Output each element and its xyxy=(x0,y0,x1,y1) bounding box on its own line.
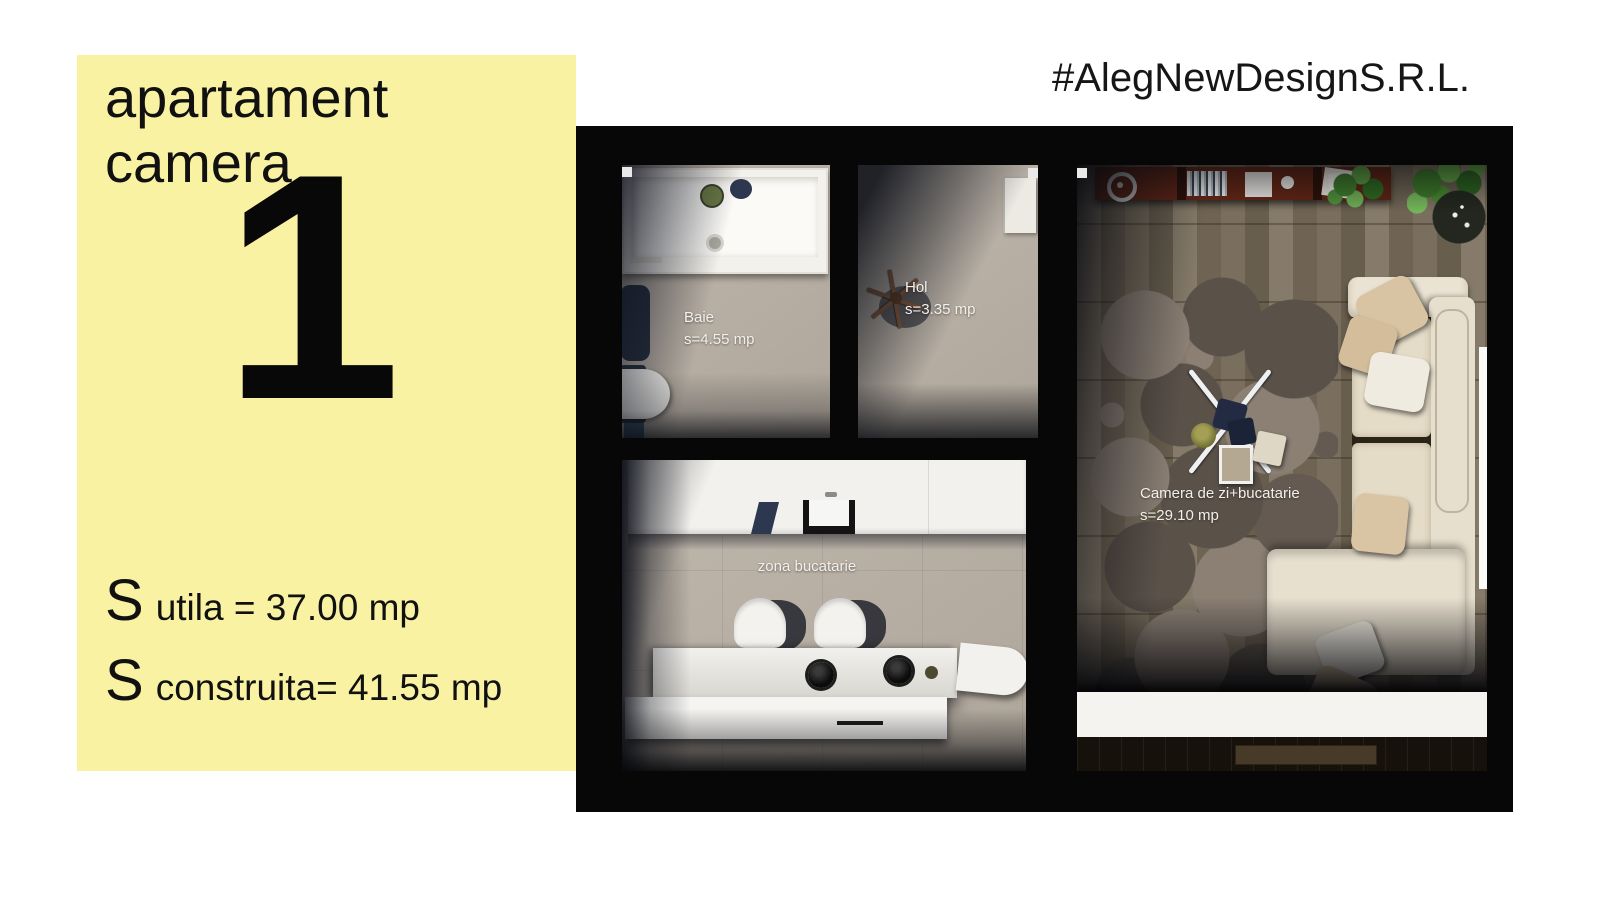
counter-seam xyxy=(928,460,929,534)
room-name: Hol xyxy=(905,277,975,299)
door-marker xyxy=(1077,168,1087,178)
bathtub-basin xyxy=(632,177,818,257)
console-gap xyxy=(1177,167,1186,200)
burner-icon xyxy=(808,662,834,688)
potted-plant-icon xyxy=(1407,165,1487,250)
room-label-living: Camera de zi+bucatarie s=29.10 mp xyxy=(1140,483,1300,527)
burner-icon xyxy=(886,658,912,684)
kitchen-sink-basin xyxy=(809,500,849,526)
window-sill xyxy=(1077,692,1487,737)
faucet-plant-icon xyxy=(702,186,722,206)
room-name: zona bucatarie xyxy=(682,556,932,578)
room-kitchen-zone: zona bucatarie xyxy=(622,460,1026,771)
bathtub-icon xyxy=(622,168,828,274)
counter-shadow-inset xyxy=(751,502,779,534)
chair-seat xyxy=(814,598,866,648)
table-plant-icon xyxy=(1191,423,1216,448)
surface-utila-value: utila = 37.00 mp xyxy=(156,587,420,628)
room-area: s=29.10 mp xyxy=(1140,505,1300,527)
room-living: Camera de zi+bucatarie s=29.10 mp xyxy=(1077,165,1487,771)
drain-icon xyxy=(706,234,724,252)
decor-plate-icon xyxy=(1107,172,1137,202)
console-gap xyxy=(1313,167,1322,200)
counter-dropshadow xyxy=(628,534,1026,550)
kitchen-sink-icon xyxy=(803,500,855,534)
room-label-baie: Baie s=4.55 mp xyxy=(684,307,754,351)
door-marker xyxy=(622,167,632,177)
apartment-number: 1 xyxy=(77,133,547,443)
room-name: Camera de zi+bucatarie xyxy=(1140,483,1300,505)
chair-seat xyxy=(734,598,786,648)
bench-detail xyxy=(837,721,883,725)
kitchen-island xyxy=(653,648,957,698)
plant-icon xyxy=(1327,165,1389,215)
surface-utila-line: Sutila = 37.00 mp xyxy=(105,567,420,634)
surface-construita-value: construita= 41.55 mp xyxy=(156,667,503,708)
decor-dish-icon xyxy=(1281,176,1294,189)
pillow-icon xyxy=(1350,492,1410,555)
room-label-hol: Hol s=3.35 mp xyxy=(905,277,975,321)
surface-symbol: S xyxy=(105,568,144,633)
kitchen-counter xyxy=(628,460,1026,534)
chair-icon xyxy=(814,592,878,648)
table-cushion xyxy=(1227,417,1257,447)
room-name: Baie xyxy=(684,307,754,329)
coat-stand-center xyxy=(890,292,902,304)
books-icon xyxy=(1187,171,1227,196)
surface-symbol: S xyxy=(105,648,144,713)
window-icon xyxy=(1479,347,1487,589)
table-tray-icon xyxy=(1219,445,1253,484)
floor-plan: Baie s=4.55 mp Hol s=3.35 mp xyxy=(576,126,1513,812)
door-marker xyxy=(1028,168,1038,178)
balcony-floor xyxy=(1077,737,1487,771)
sofa-cushion-outline xyxy=(1435,309,1469,513)
toilet-icon xyxy=(622,285,650,361)
room-area: s=3.35 mp xyxy=(905,299,975,321)
decor-box-icon xyxy=(1245,172,1272,197)
cabinet-icon xyxy=(1003,178,1036,233)
company-branding: #AlegNewDesignS.R.L. xyxy=(1052,56,1470,101)
room-bathroom: Baie s=4.55 mp xyxy=(622,165,830,438)
kitchen-sink-handle xyxy=(825,492,837,497)
kitchen-bench xyxy=(625,697,947,739)
surface-construita-line: Sconstruita= 41.55 mp xyxy=(105,647,502,714)
room-hol: Hol s=3.35 mp xyxy=(858,165,1038,438)
coffee-table-icon xyxy=(1175,375,1280,470)
sink-icon xyxy=(622,369,670,419)
info-panel: apartament camera 1 Sutila = 37.00 mp Sc… xyxy=(77,55,576,771)
balcony-mat xyxy=(1235,745,1377,765)
island-knob xyxy=(925,666,938,679)
pillow-icon xyxy=(1363,350,1431,414)
chair-icon xyxy=(734,592,798,648)
armchair-icon xyxy=(956,642,1026,697)
plate-center xyxy=(1117,182,1123,188)
faucet-icon xyxy=(730,179,752,199)
room-label-zona-bucatarie: zona bucatarie xyxy=(682,556,932,578)
room-area: s=4.55 mp xyxy=(684,329,754,351)
